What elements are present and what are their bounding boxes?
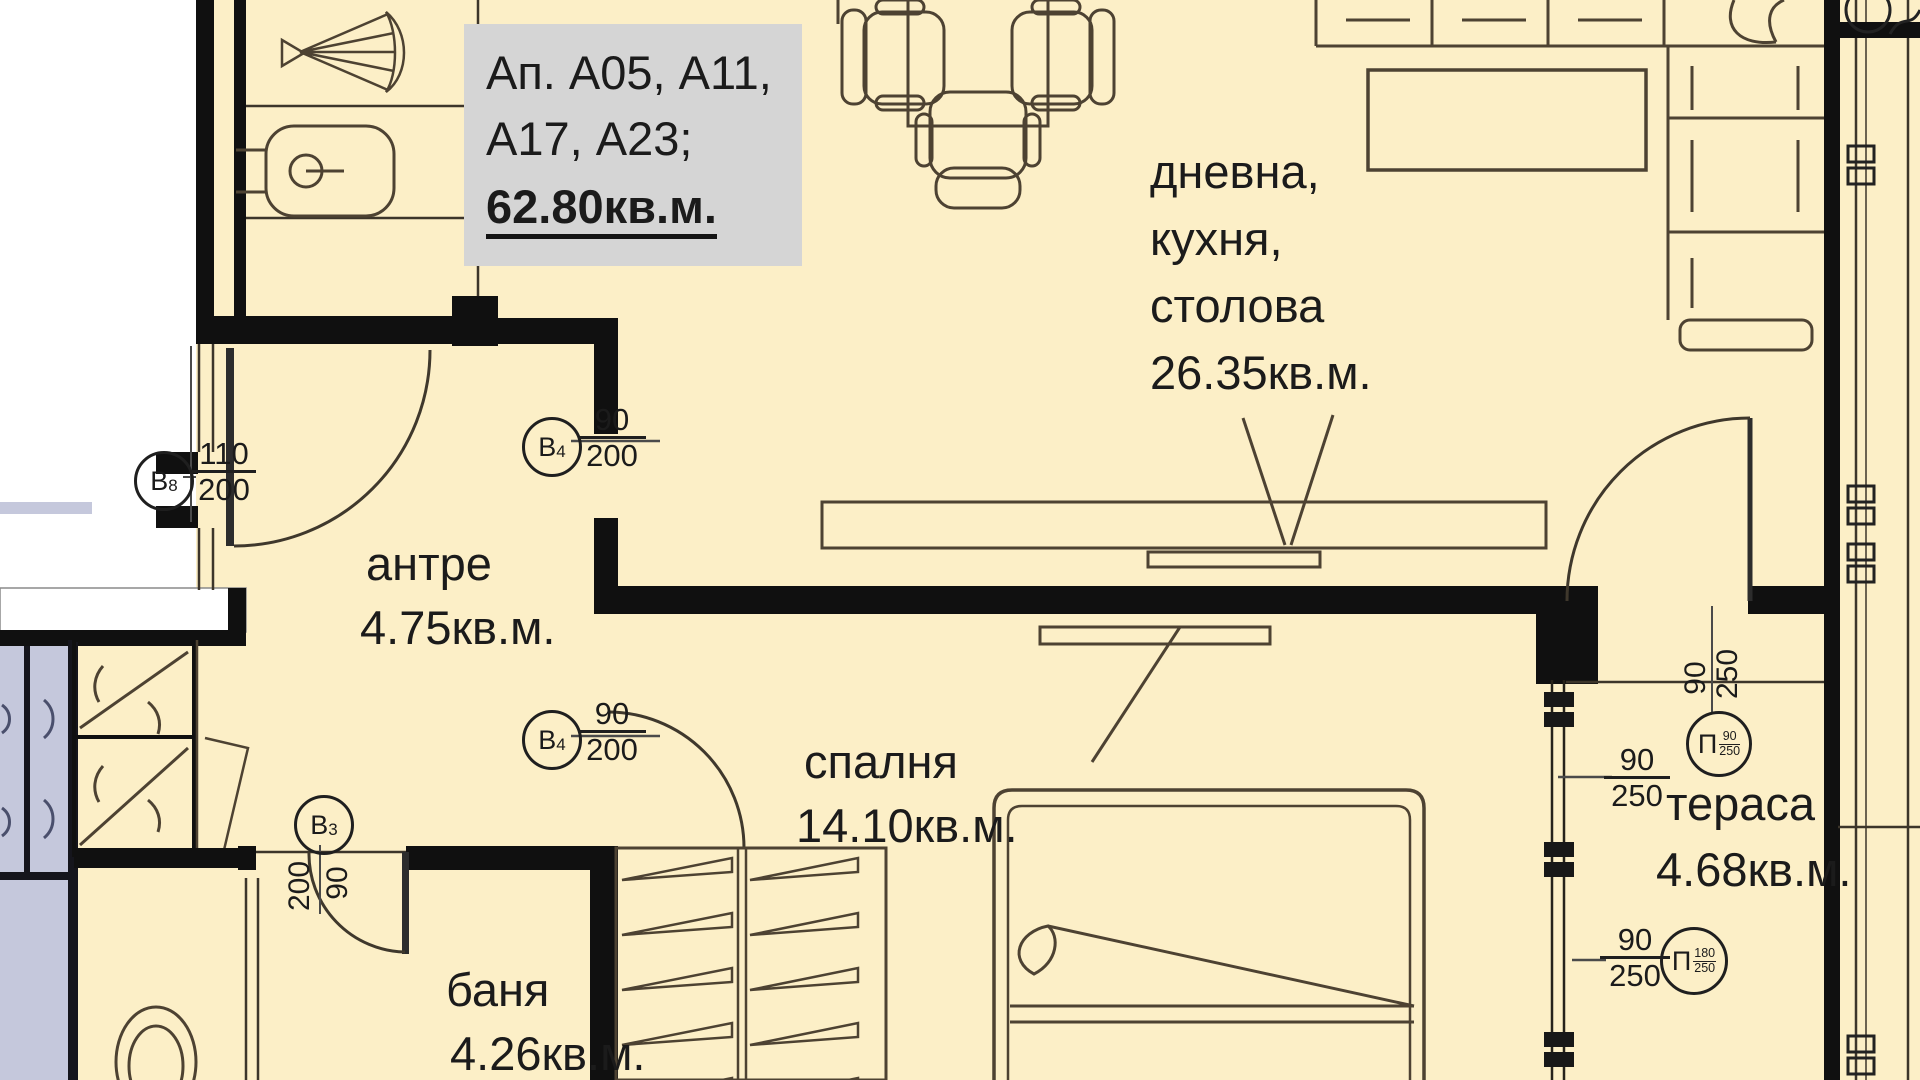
marker-b8: В8: [134, 451, 194, 511]
living-name-1: дневна,: [1150, 138, 1372, 205]
marker-b4-upper-label: В: [538, 432, 556, 463]
marker-p1: П 90 250: [1686, 711, 1752, 777]
b4-lower-height: 200: [578, 730, 646, 767]
room-label-bath-area: 4.26кв.м.: [450, 1030, 645, 1077]
p2-mini-height: 250: [1693, 962, 1716, 976]
p1-height-rotated: 250: [1711, 644, 1745, 704]
p1-mini-width: 90: [1719, 730, 1740, 745]
marker-p2-fraction: 90 250: [1600, 924, 1670, 993]
room-label-bath-name: баня: [446, 966, 549, 1013]
p2-width: 90: [1600, 924, 1670, 956]
apartment-title-line2: А17, А23;: [486, 106, 802, 172]
marker-b3-sublabel: 3: [328, 820, 337, 840]
b4-upper-width: 90: [578, 404, 646, 436]
b4-lower-width: 90: [578, 698, 646, 730]
p1-mini-height: 250: [1719, 745, 1740, 759]
floorplan-page: Ап. А05, А11, А17, А23; 62.80кв.м. дневн…: [0, 0, 1920, 1080]
b8-width: 110: [192, 438, 256, 470]
marker-p2-ministack: 180 250: [1693, 947, 1716, 976]
living-name-2: кухня,: [1150, 205, 1372, 272]
apartment-title-box: Ап. А05, А11, А17, А23; 62.80кв.м.: [464, 24, 802, 266]
marker-b4-lower: В4: [522, 710, 582, 770]
floorplan-drawing: [0, 0, 1920, 1080]
marker-b4-lower-fraction: 90 200: [578, 698, 646, 767]
marker-p1-ministack: 90 250: [1719, 730, 1740, 759]
apartment-title-line1: Ап. А05, А11,: [486, 40, 802, 106]
marker-b4-upper-fraction: 90 200: [578, 404, 646, 473]
marker-b4-upper-sublabel: 4: [556, 442, 565, 462]
room-label-terrace-name: тераса: [1666, 780, 1815, 827]
room-label-hall-area: 4.75кв.м.: [360, 604, 555, 651]
b8-height: 200: [192, 470, 256, 507]
apartment-total-area: 62.80кв.м.: [486, 172, 802, 242]
p2-mini-width: 180: [1693, 947, 1716, 962]
living-name-3: столова: [1150, 272, 1372, 339]
room-label-terrace-area: 4.68кв.м.: [1656, 846, 1851, 893]
marker-p1-fraction: 90 250: [1604, 744, 1670, 813]
p2-height: 250: [1600, 956, 1670, 993]
marker-p1-label: П: [1698, 729, 1717, 760]
b3-width-rotated: 90: [321, 861, 355, 905]
marker-b4-upper: В4: [522, 417, 582, 477]
background-zones: [0, 0, 1920, 1080]
marker-b8-sublabel: 8: [168, 476, 177, 496]
marker-p2: П 180 250: [1660, 927, 1728, 995]
living-area: 26.35кв.м.: [1150, 339, 1372, 406]
marker-b4-lower-label: В: [538, 725, 556, 756]
b3-height-rotated: 200: [283, 854, 317, 918]
marker-p2-label: П: [1672, 946, 1691, 977]
room-label-bedroom-area: 14.10кв.м.: [796, 802, 1018, 849]
marker-b4-lower-sublabel: 4: [556, 735, 565, 755]
p1-width: 90: [1604, 744, 1670, 776]
b4-upper-height: 200: [578, 436, 646, 473]
p1-width-rotated: 90: [1679, 654, 1713, 702]
marker-b3-label: В: [310, 810, 328, 841]
marker-b8-label: В: [150, 466, 168, 497]
p1-height: 250: [1604, 776, 1670, 813]
room-label-living: дневна, кухня, столова 26.35кв.м.: [1150, 138, 1372, 406]
marker-b3: В3: [294, 795, 354, 855]
marker-b8-fraction: 110 200: [192, 438, 256, 507]
room-label-bedroom-name: спалня: [804, 738, 958, 785]
room-label-hall-name: антре: [366, 540, 492, 587]
